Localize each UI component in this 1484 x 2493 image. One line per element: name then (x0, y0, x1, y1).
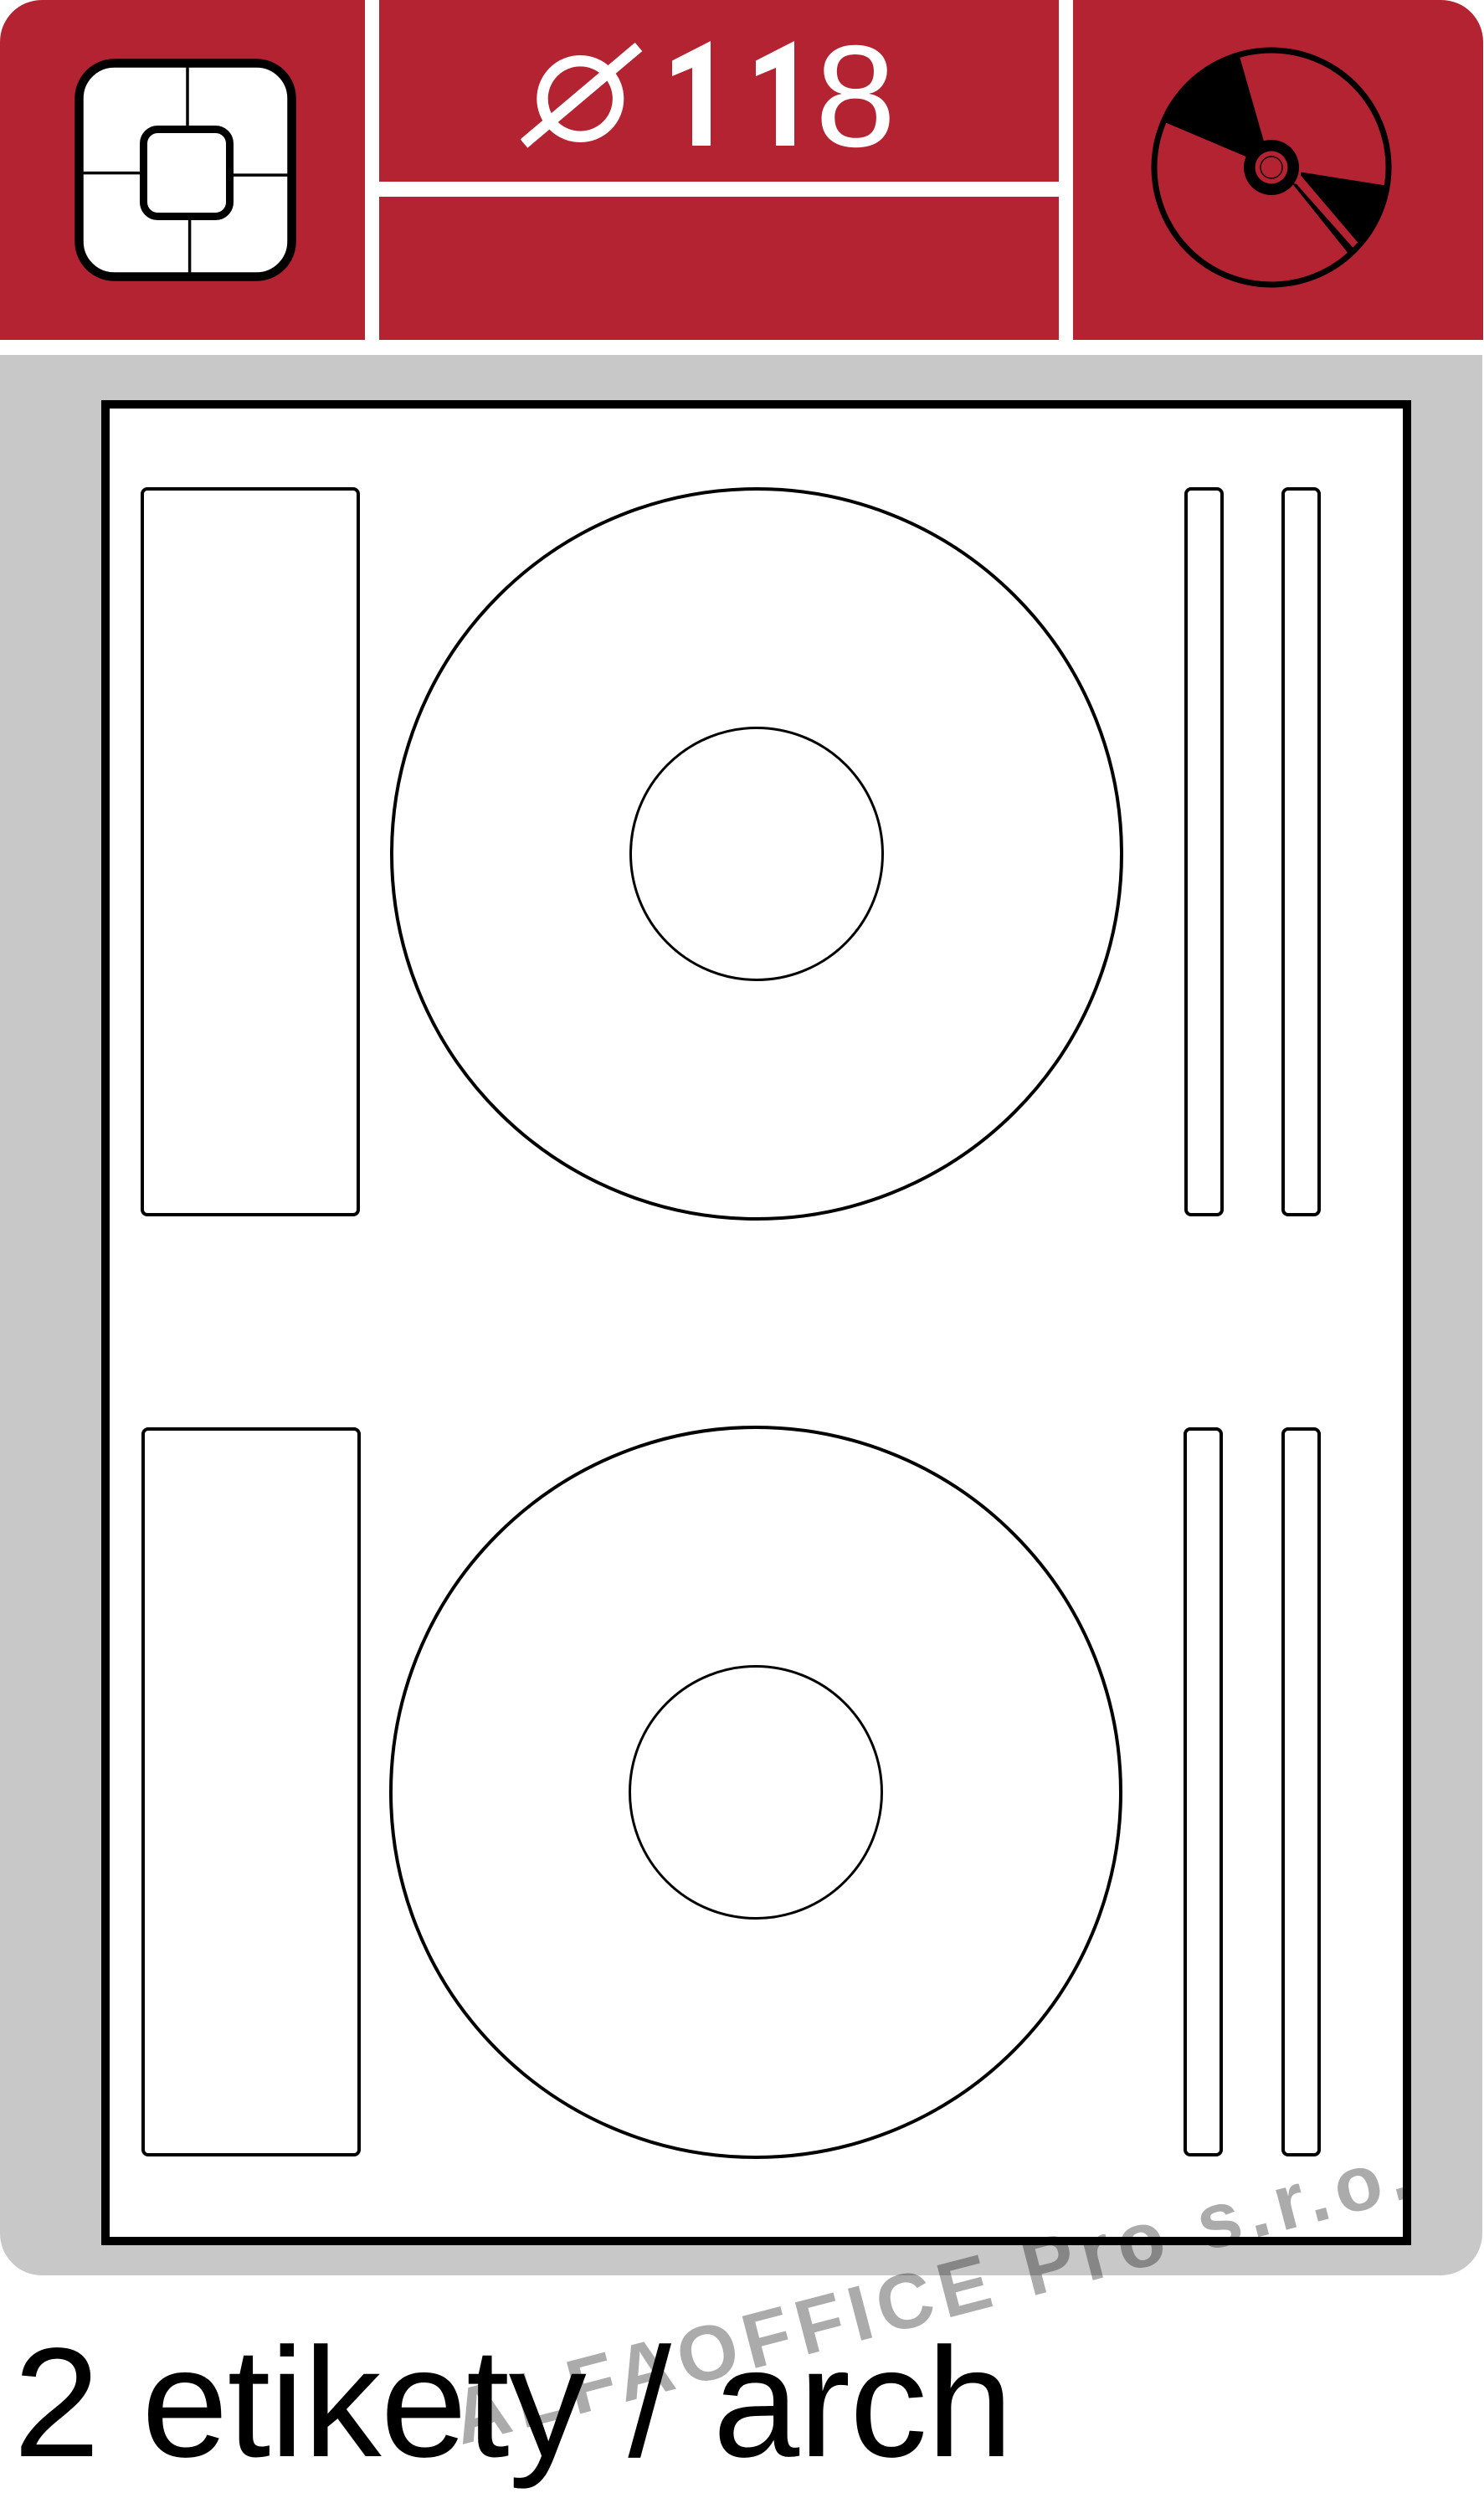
svg-text:8: 8 (815, 15, 896, 177)
